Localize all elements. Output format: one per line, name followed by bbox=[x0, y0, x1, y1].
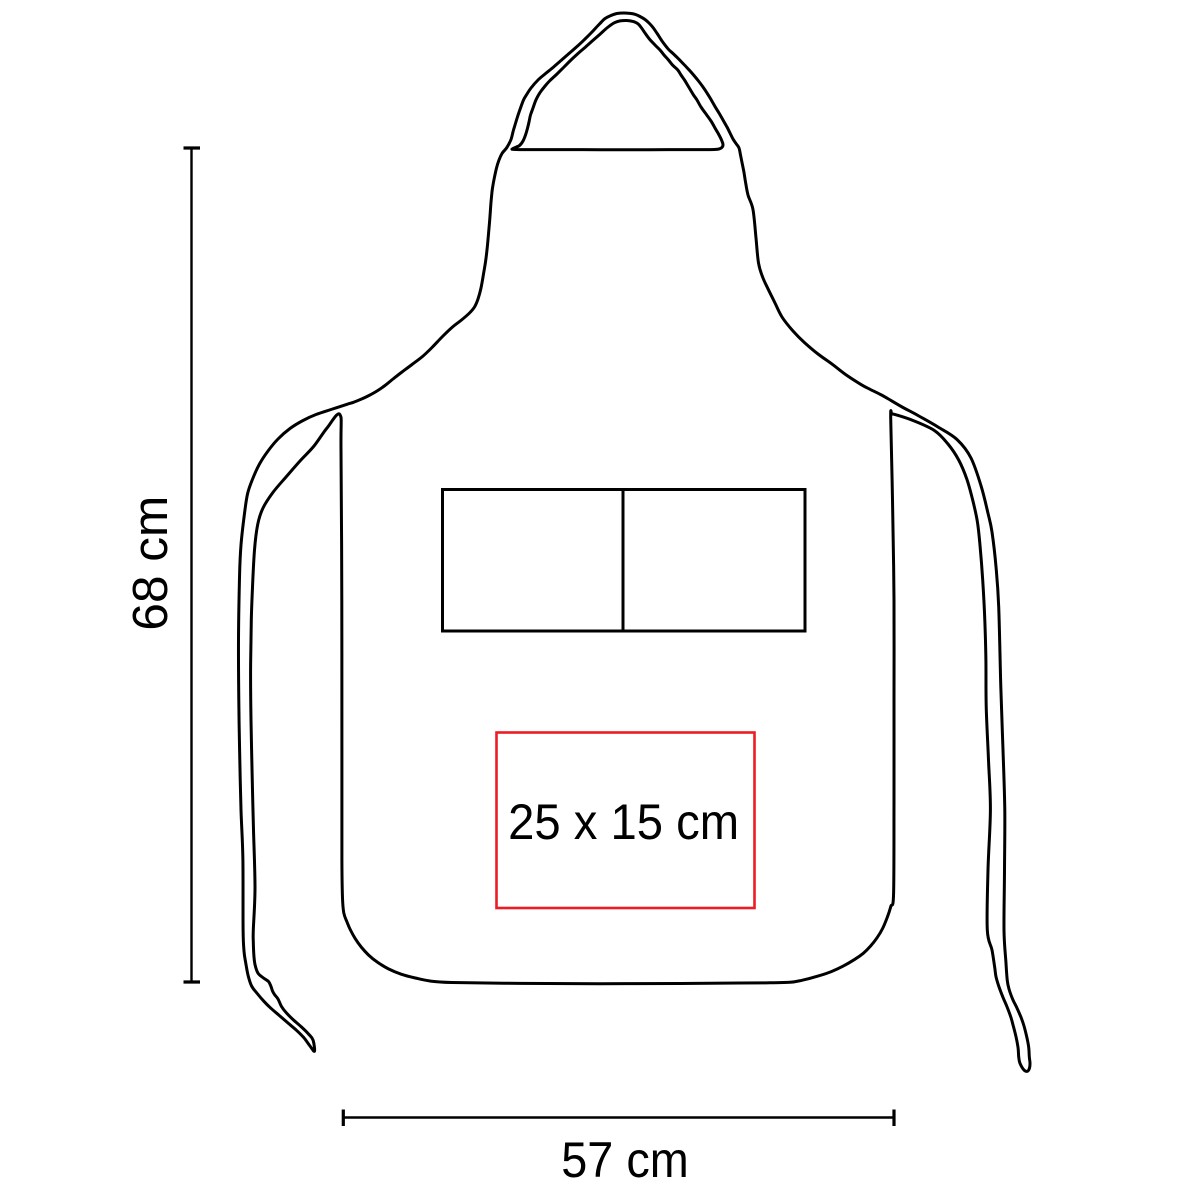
svg-text:68 cm: 68 cm bbox=[124, 496, 178, 631]
svg-text:57 cm: 57 cm bbox=[561, 1132, 689, 1188]
svg-text:25 x 15 cm: 25 x 15 cm bbox=[508, 794, 739, 850]
